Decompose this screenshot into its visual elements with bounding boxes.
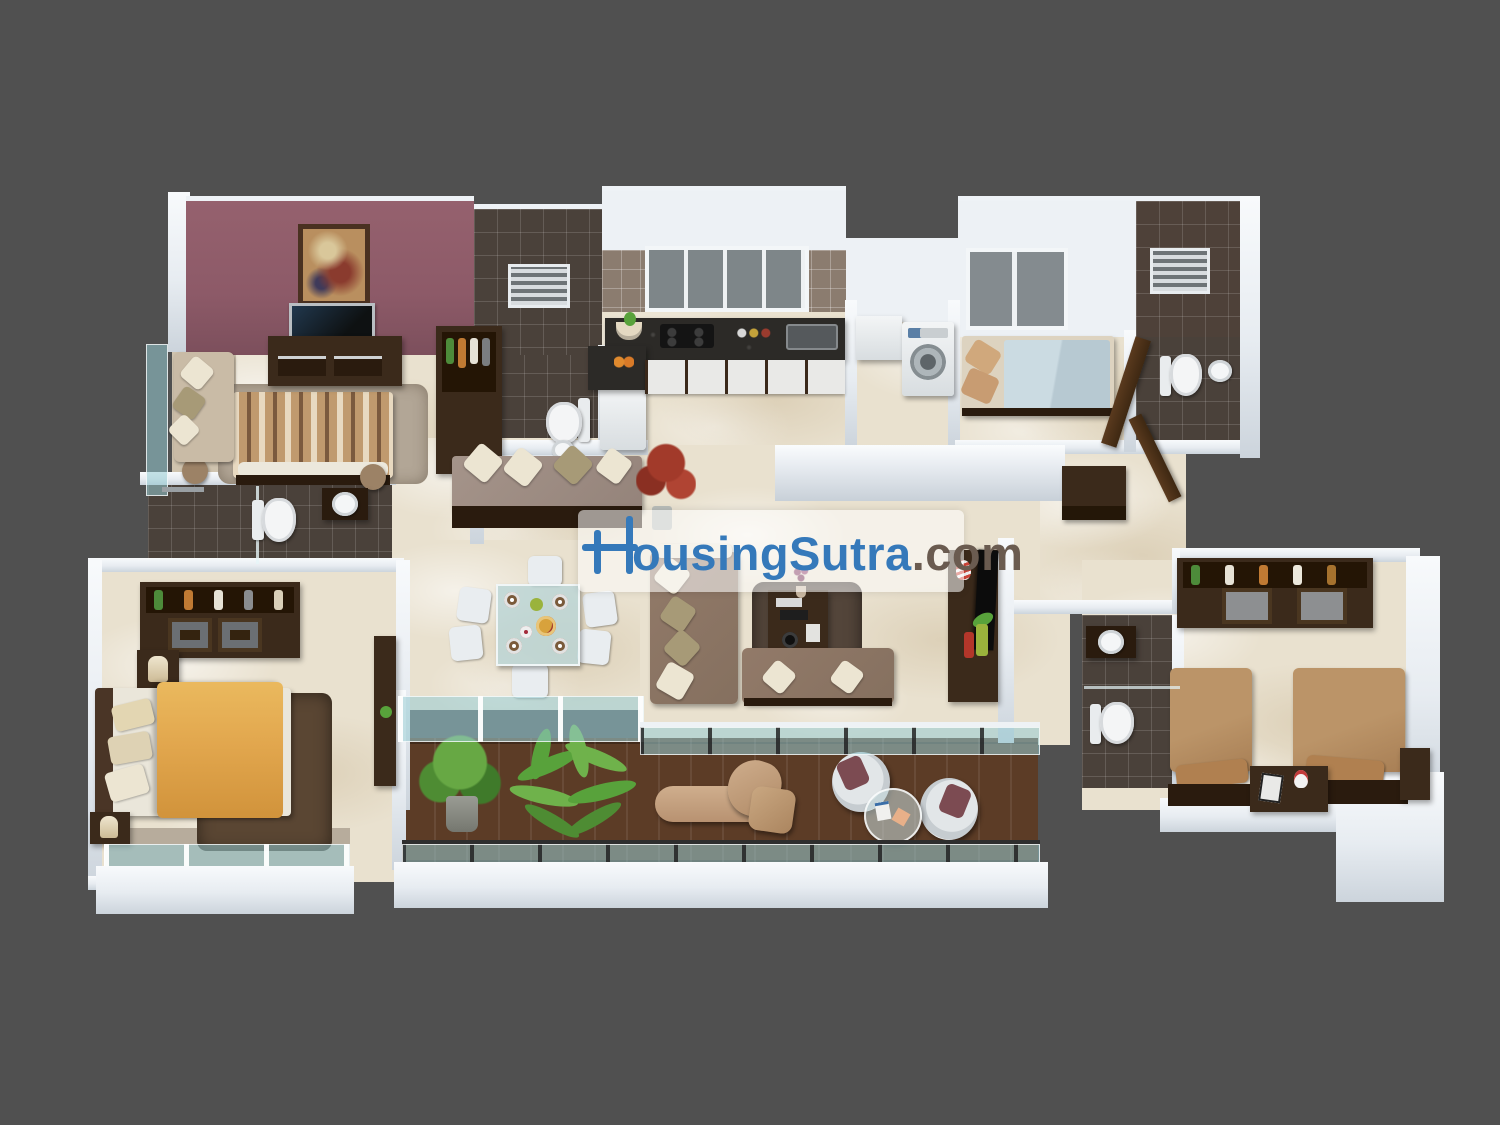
hall-console-table xyxy=(1062,466,1126,520)
powder-toilet-bowl xyxy=(546,402,582,444)
red-vase xyxy=(964,632,974,658)
wardrobe-interior xyxy=(1183,562,1367,588)
dresser-plant xyxy=(380,706,392,718)
master-balcony-fascia xyxy=(96,866,354,914)
dining-deck-glass xyxy=(398,696,644,742)
twin-bed-left xyxy=(1170,668,1252,772)
toilet-3-bowl xyxy=(1100,702,1134,744)
plate xyxy=(552,594,568,610)
floor-plan-render: ousingSutra.com xyxy=(0,0,1500,1125)
kitchen-window xyxy=(645,246,809,312)
bedroom-1-balcony-glass xyxy=(146,344,168,496)
toilet-1-bowl xyxy=(262,498,296,542)
hanging-clothes xyxy=(1327,565,1336,585)
hanging-clothes xyxy=(244,590,253,610)
dining-chair xyxy=(528,556,562,586)
pillow xyxy=(110,698,155,733)
bath-3-glass-partition xyxy=(1084,686,1180,689)
pillow xyxy=(107,731,153,766)
dining-chair xyxy=(576,628,611,665)
decor-jar xyxy=(1294,770,1308,788)
mirror-door xyxy=(1222,588,1272,624)
round-glass-table xyxy=(864,788,922,844)
tv-console-shelf-right xyxy=(334,356,382,376)
wash-counter xyxy=(856,316,902,360)
guest-single-bed xyxy=(962,336,1114,416)
washer-control-panel xyxy=(908,328,948,338)
egg-chair-right xyxy=(920,778,978,840)
deck-glass-top xyxy=(640,727,1040,755)
hanging-clothes xyxy=(154,590,163,610)
pillow xyxy=(835,754,871,792)
coffee-table xyxy=(768,590,828,654)
magazine xyxy=(806,624,820,642)
master-wardrobe xyxy=(140,582,300,658)
book xyxy=(780,610,808,620)
dining-chair xyxy=(582,590,618,628)
washer-door xyxy=(910,344,946,380)
kitchen-counter-left-arm xyxy=(588,346,646,390)
washing-machine xyxy=(902,322,954,396)
dining-chair xyxy=(512,664,548,698)
bedroom-3-wardrobe xyxy=(1177,558,1373,628)
louver-vent-bath-2 xyxy=(1150,248,1210,294)
mirror-door xyxy=(1297,588,1347,624)
brand-tld: .com xyxy=(912,527,1024,580)
glass-dining-table xyxy=(496,584,580,666)
hanging-clothes xyxy=(470,338,478,364)
wall-master-top xyxy=(88,558,404,572)
tray xyxy=(782,632,798,648)
louver-vent-powder xyxy=(508,264,570,308)
loveseat-base xyxy=(744,698,892,706)
side-stool-right xyxy=(360,464,386,490)
twin-nightstand xyxy=(1250,766,1328,812)
master-bed xyxy=(95,688,291,816)
plate xyxy=(504,592,520,608)
guest-bed-blanket xyxy=(1004,340,1110,412)
condiment-set xyxy=(737,327,777,339)
shower-head xyxy=(162,487,204,492)
master-blanket-yellow xyxy=(157,682,283,818)
ottoman xyxy=(747,785,797,835)
tall-leaf xyxy=(976,624,988,656)
pillow xyxy=(960,367,1001,406)
magazine xyxy=(875,801,892,821)
twin-bed-left-headboard xyxy=(1168,784,1256,806)
kitchen-cabinets xyxy=(645,360,845,394)
bath-3-basin xyxy=(1098,630,1124,654)
wall-living-north xyxy=(775,445,1065,501)
gas-hob xyxy=(660,324,714,348)
hanging-clothes xyxy=(482,338,490,366)
hanging-clothes xyxy=(1191,565,1200,585)
hanging-clothes xyxy=(1259,565,1268,585)
plant-pot xyxy=(446,796,478,832)
wardrobe-door xyxy=(218,618,262,652)
guest-bed-base xyxy=(962,408,1114,416)
outer-wall-top-right xyxy=(1240,196,1260,458)
watermark-panel: ousingSutra.com xyxy=(578,510,964,592)
table-lamp xyxy=(100,816,118,838)
watermark-text: ousingSutra.com xyxy=(632,526,1023,581)
hanging-clothes xyxy=(458,338,466,368)
salad-bowl xyxy=(530,598,543,611)
corner-side-table xyxy=(1400,748,1430,800)
pizza-platter xyxy=(536,616,556,636)
refrigerator xyxy=(600,388,646,450)
hanging-clothes xyxy=(214,590,223,610)
logo-short-stem xyxy=(594,530,601,574)
toilet-2-bowl xyxy=(1170,354,1202,396)
book xyxy=(776,598,802,607)
deck-fascia xyxy=(394,862,1048,908)
dining-chair xyxy=(448,624,483,661)
coaster xyxy=(891,807,910,826)
kitchen-sink xyxy=(786,324,838,350)
wardrobe-door xyxy=(168,618,212,652)
pillow xyxy=(937,782,972,820)
bath-1-basin xyxy=(332,492,358,516)
table-lamp xyxy=(148,656,168,682)
plate xyxy=(552,638,568,654)
dessert-plate xyxy=(520,626,532,638)
brand-name-blue: ousingSutra xyxy=(632,527,912,580)
dining-chair xyxy=(456,586,492,624)
fruit-oranges xyxy=(614,356,634,368)
hanging-clothes xyxy=(274,590,283,610)
hanging-clothes xyxy=(446,338,454,364)
tv-console-shelf-left xyxy=(278,356,326,376)
wall-bath3-top xyxy=(1014,600,1184,614)
bedroom-2-window xyxy=(966,248,1068,330)
magazine xyxy=(1258,773,1284,804)
hanging-clothes xyxy=(1293,565,1302,585)
logo-crossbar xyxy=(582,544,638,551)
pineapple-top xyxy=(624,312,636,326)
plate xyxy=(506,638,522,654)
palm-frond xyxy=(566,776,638,808)
hanging-clothes xyxy=(184,590,193,610)
wall-painting xyxy=(298,224,370,306)
red-plant xyxy=(636,442,696,512)
utility-back-wall xyxy=(846,238,960,322)
bath-2-basin xyxy=(1208,360,1232,382)
hanging-clothes xyxy=(1225,565,1234,585)
